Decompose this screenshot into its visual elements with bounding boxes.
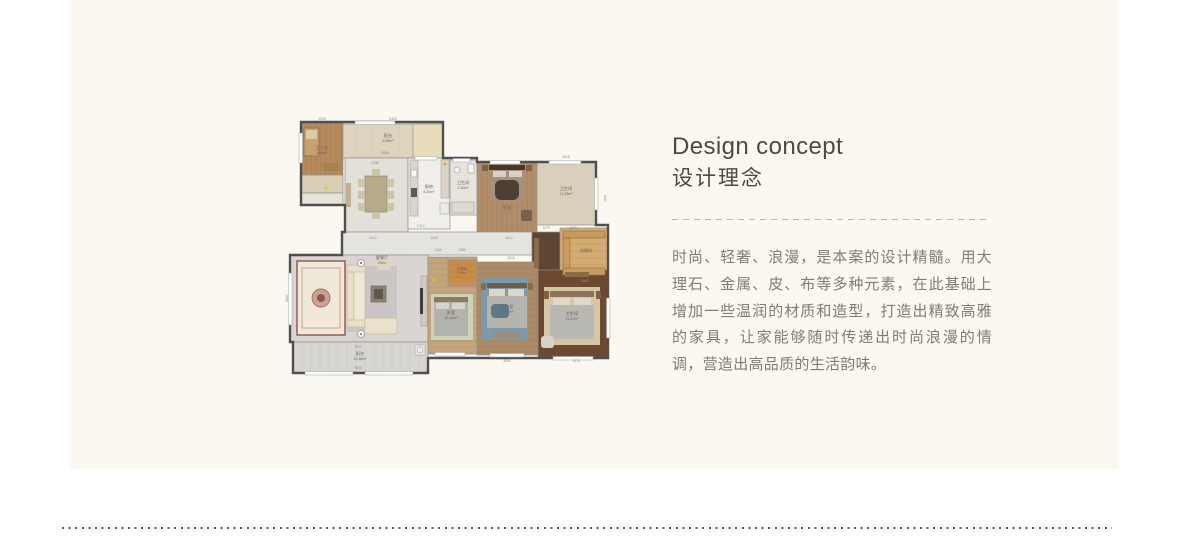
svg-text:2.40m²: 2.40m²: [457, 186, 469, 190]
bottom-dotted-divider: [62, 527, 1112, 529]
svg-text:16.14m²: 16.14m²: [500, 310, 514, 314]
svg-text:7620: 7620: [354, 345, 362, 349]
svg-text:客餐厅: 客餐厅: [376, 254, 389, 261]
svg-text:1640: 1640: [603, 194, 607, 202]
svg-text:1075: 1075: [572, 359, 580, 363]
room-study-closet: [301, 175, 343, 193]
svg-text:10.36m²: 10.36m²: [353, 357, 367, 361]
room-balcony-top-cabinet: [413, 124, 443, 158]
svg-text:3.69m²: 3.69m²: [457, 271, 467, 275]
description-paragraph: 时尚、轻奢、浪漫，是本案的设计精髓。用大理石、金属、皮、布等多种元素，在此基础上…: [672, 245, 992, 379]
svg-text:29m²: 29m²: [378, 261, 387, 265]
svg-text:1929: 1929: [569, 226, 577, 230]
svg-text:阳台: 阳台: [384, 132, 392, 139]
svg-text:2412: 2412: [369, 236, 377, 240]
svg-text:1079: 1079: [542, 226, 550, 230]
svg-text:3556: 3556: [381, 151, 389, 155]
svg-text:11.29m²: 11.29m²: [560, 192, 574, 196]
svg-text:3212: 3212: [507, 256, 515, 260]
svg-text:主卧室: 主卧室: [566, 310, 579, 317]
svg-text:1944: 1944: [318, 117, 326, 121]
svg-text:卧室: 卧室: [447, 309, 455, 316]
svg-text:9.06m²: 9.06m²: [382, 139, 394, 143]
svg-text:卫生间: 卫生间: [457, 179, 470, 186]
room-study-terrace: [301, 193, 343, 205]
content-panel: 工人房6.54m²阳台9.06m²厨房8.30m²卫生间2.40m²卧室卫生间1…: [70, 0, 1119, 469]
svg-text:2112: 2112: [417, 224, 424, 228]
svg-text:衣帽间: 衣帽间: [580, 247, 593, 254]
dashed-divider: [672, 219, 990, 220]
svg-text:工人房: 工人房: [316, 144, 329, 151]
svg-text:卧室: 卧室: [503, 204, 511, 211]
svg-text:6.54m²: 6.54m²: [316, 151, 328, 155]
svg-text:8.30m²: 8.30m²: [423, 190, 435, 194]
floorplan-image: 工人房6.54m²阳台9.06m²厨房8.30m²卫生间2.40m²卧室卫生间1…: [285, 108, 615, 380]
svg-text:1095: 1095: [458, 248, 466, 252]
svg-text:卫生间: 卫生间: [560, 185, 573, 192]
svg-text:1346: 1346: [434, 248, 442, 252]
svg-text:3050: 3050: [503, 359, 511, 363]
svg-text:主卧室: 主卧室: [501, 303, 514, 310]
svg-text:5420: 5420: [389, 117, 397, 121]
floorplan-svg: 工人房6.54m²阳台9.06m²厨房8.30m²卫生间2.40m²卧室卫生间1…: [285, 108, 615, 380]
svg-text:3436: 3436: [371, 161, 379, 165]
svg-text:7620: 7620: [354, 366, 362, 370]
svg-text:3612: 3612: [505, 236, 513, 240]
svg-text:阳台: 阳台: [356, 350, 364, 357]
svg-text:3018: 3018: [562, 155, 570, 159]
svg-text:厨房: 厨房: [425, 183, 433, 190]
svg-text:11.37m²: 11.37m²: [566, 317, 580, 321]
svg-text:6840: 6840: [285, 294, 289, 302]
svg-text:2652: 2652: [581, 279, 589, 283]
design-concept-block: Design concept 设计理念 时尚、轻奢、浪漫，是本案的设计精髓。用大…: [672, 132, 992, 394]
heading-chinese: 设计理念: [672, 165, 992, 193]
heading-english: Design concept: [672, 132, 992, 162]
svg-text:13.16m²: 13.16m²: [444, 316, 458, 320]
svg-text:1635: 1635: [430, 236, 438, 240]
